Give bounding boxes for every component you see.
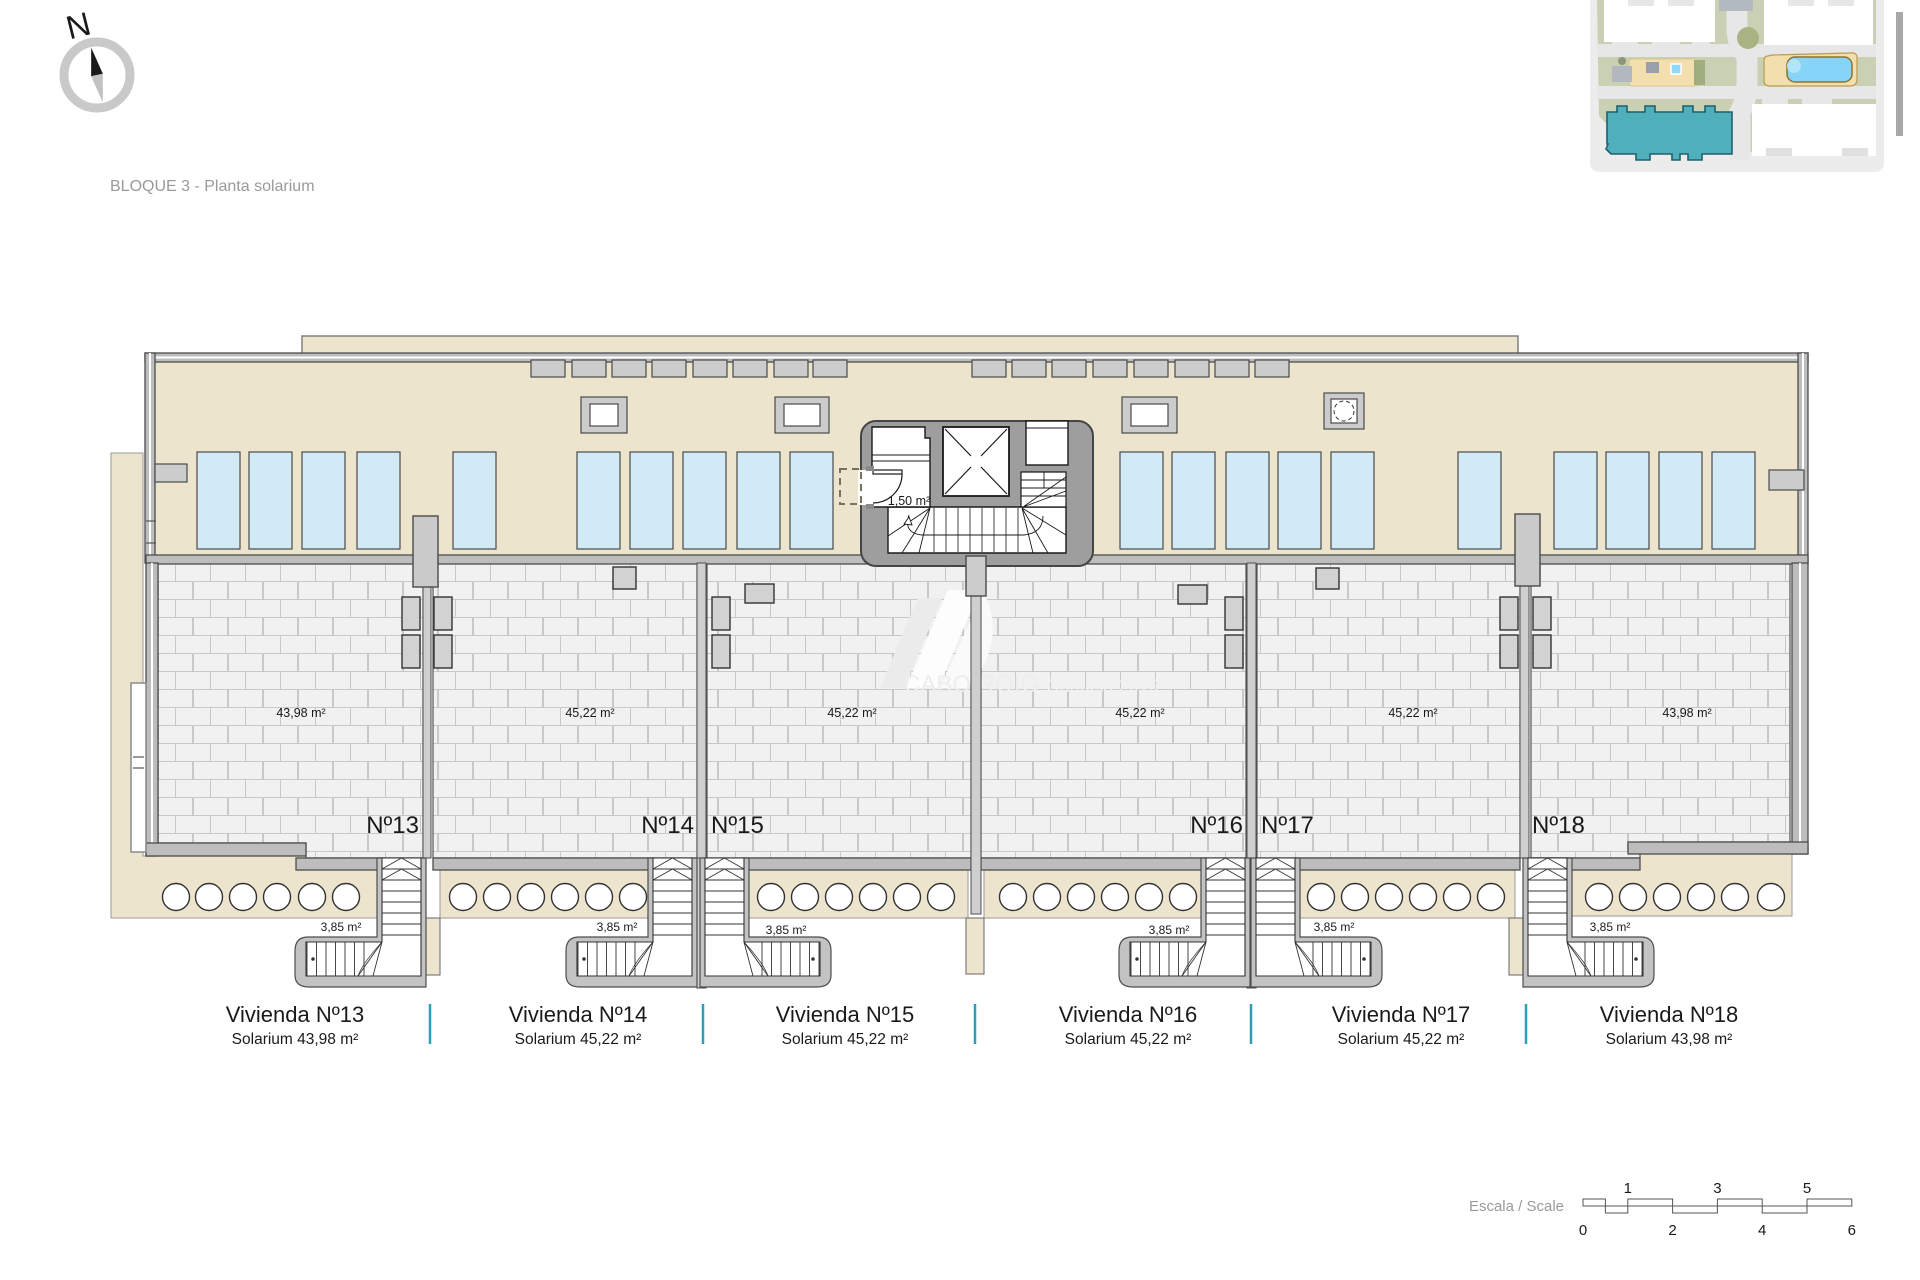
svg-text:43,98 m²: 43,98 m² <box>276 706 325 720</box>
svg-text:45,22 m²: 45,22 m² <box>827 706 876 720</box>
svg-text:3,85 m²: 3,85 m² <box>1314 920 1355 934</box>
svg-text:Nº17: Nº17 <box>1261 812 1314 839</box>
svg-text:6: 6 <box>1848 1222 1856 1239</box>
svg-text:45,22 m²: 45,22 m² <box>1115 706 1164 720</box>
svg-text:43,98 m²: 43,98 m² <box>1662 706 1711 720</box>
svg-text:Vivienda Nº16: Vivienda Nº16 <box>1059 1002 1198 1027</box>
svg-text:Nº15: Nº15 <box>711 812 764 839</box>
svg-text:BLOQUE 3 - Planta solarium: BLOQUE 3 - Planta solarium <box>110 178 315 195</box>
svg-text:Solarium 45,22 m²: Solarium 45,22 m² <box>515 1031 642 1048</box>
svg-text:Vivienda Nº18: Vivienda Nº18 <box>1600 1002 1739 1027</box>
svg-text:CABO ROIG Orihuela 2019: CABO ROIG Orihuela 2019 <box>903 671 1159 698</box>
svg-text:Nº14: Nº14 <box>641 812 694 839</box>
svg-text:1,50 m²: 1,50 m² <box>888 494 930 508</box>
svg-text:Vivienda Nº15: Vivienda Nº15 <box>776 1002 915 1027</box>
svg-text:Solarium 45,22 m²: Solarium 45,22 m² <box>1065 1031 1192 1048</box>
svg-text:3,85 m²: 3,85 m² <box>1590 920 1631 934</box>
svg-text:45,22 m²: 45,22 m² <box>565 706 614 720</box>
svg-text:2: 2 <box>1668 1222 1676 1239</box>
svg-text:Nº18: Nº18 <box>1532 812 1585 839</box>
svg-text:5: 5 <box>1803 1180 1811 1197</box>
svg-text:3: 3 <box>1713 1180 1721 1197</box>
svg-text:Vivienda Nº13: Vivienda Nº13 <box>226 1002 365 1027</box>
svg-text:45,22 m²: 45,22 m² <box>1388 706 1437 720</box>
svg-text:Solarium 45,22 m²: Solarium 45,22 m² <box>1338 1031 1465 1048</box>
svg-text:3,85 m²: 3,85 m² <box>597 920 638 934</box>
svg-text:4: 4 <box>1758 1222 1766 1239</box>
svg-text:Solarium 43,98 m²: Solarium 43,98 m² <box>1606 1031 1733 1048</box>
svg-text:3,85 m²: 3,85 m² <box>766 923 807 937</box>
svg-text:Solarium 43,98 m²: Solarium 43,98 m² <box>232 1031 359 1048</box>
svg-text:1: 1 <box>1624 1180 1632 1197</box>
svg-text:3,85 m²: 3,85 m² <box>321 920 362 934</box>
svg-text:3,85 m²: 3,85 m² <box>1149 923 1190 937</box>
svg-text:0: 0 <box>1579 1222 1587 1239</box>
svg-text:Nº16: Nº16 <box>1190 812 1243 839</box>
svg-text:Vivienda Nº14: Vivienda Nº14 <box>509 1002 648 1027</box>
svg-text:Nº13: Nº13 <box>366 812 419 839</box>
svg-text:Escala / Scale: Escala / Scale <box>1469 1198 1564 1215</box>
svg-text:Solarium 45,22 m²: Solarium 45,22 m² <box>782 1031 909 1048</box>
svg-text:Vivienda Nº17: Vivienda Nº17 <box>1332 1002 1471 1027</box>
